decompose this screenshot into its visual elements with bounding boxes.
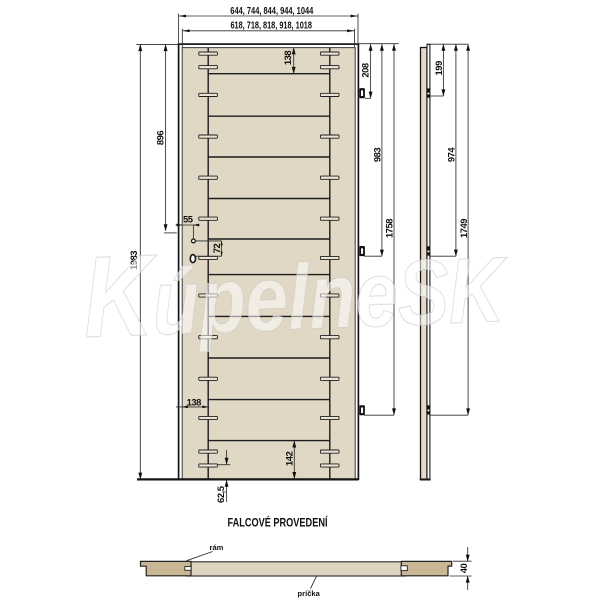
svg-text:138: 138 xyxy=(187,397,202,408)
svg-text:1749: 1749 xyxy=(458,219,469,238)
svg-text:974: 974 xyxy=(446,147,457,163)
svg-text:896: 896 xyxy=(155,131,166,146)
svg-text:199: 199 xyxy=(433,61,444,76)
svg-text:rám: rám xyxy=(210,543,224,552)
svg-text:55: 55 xyxy=(183,214,193,225)
svg-text:208: 208 xyxy=(359,63,370,78)
svg-text:1758: 1758 xyxy=(384,219,395,238)
svg-text:FALCOVÉ PROVEDENÍ: FALCOVÉ PROVEDENÍ xyxy=(228,517,329,530)
svg-text:62,5: 62,5 xyxy=(215,486,226,503)
svg-text:40: 40 xyxy=(458,564,469,574)
svg-text:142: 142 xyxy=(284,451,295,466)
svg-text:618, 718, 818, 918, 1018: 618, 718, 818, 918, 1018 xyxy=(230,21,312,32)
svg-text:138: 138 xyxy=(282,51,293,66)
svg-text:983: 983 xyxy=(371,148,382,163)
svg-text:644, 744, 844, 944, 1044: 644, 744, 844, 944, 1044 xyxy=(230,6,313,17)
svg-text:príčka: príčka xyxy=(298,589,321,598)
